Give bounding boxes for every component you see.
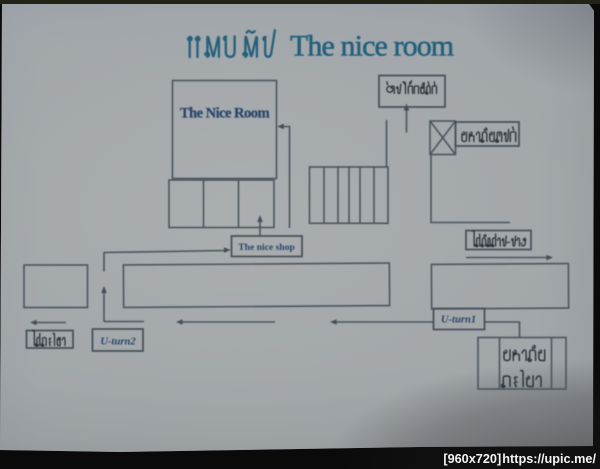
svg-text:The nice room: The nice room — [290, 30, 454, 63]
svg-text:U-turn1: U-turn1 — [441, 315, 476, 326]
svg-text:The Nice Room: The Nice Room — [180, 106, 270, 122]
svg-text:U-turn2: U-turn2 — [100, 337, 136, 348]
svg-text:The nice shop: The nice shop — [238, 242, 295, 253]
